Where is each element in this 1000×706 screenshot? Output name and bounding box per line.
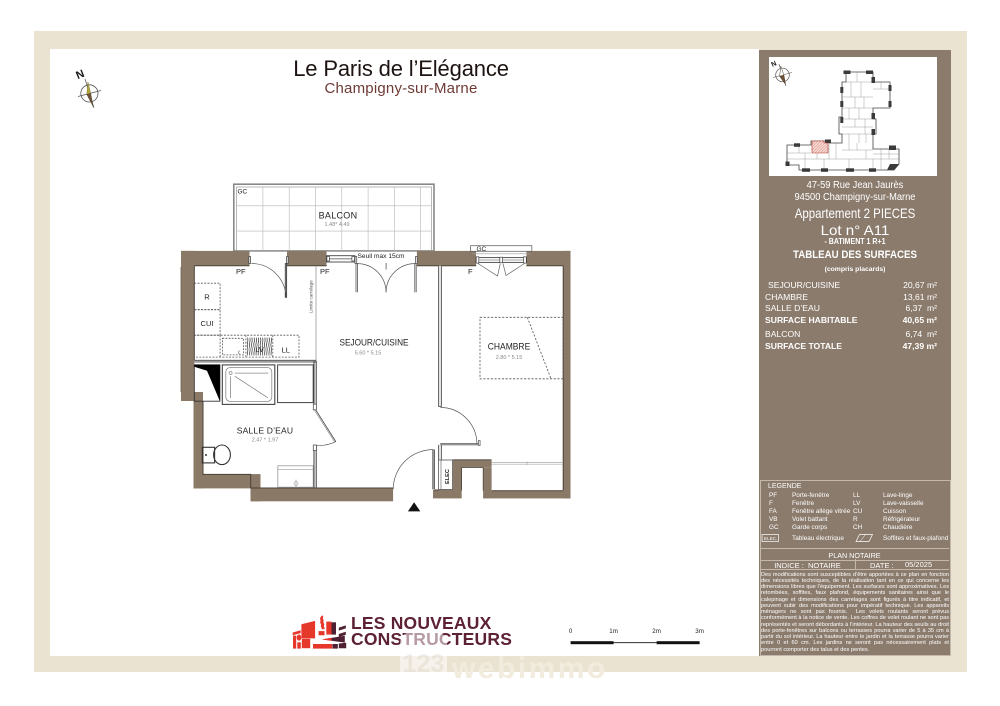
svg-text:SEJOUR/CUISINE: SEJOUR/CUISINE [340, 338, 409, 349]
svg-text:R: R [204, 293, 210, 302]
svg-text:0: 0 [569, 628, 573, 635]
svg-text:Seuil max 15cm: Seuil max 15cm [358, 253, 405, 260]
svg-text:2.80 * 5.15: 2.80 * 5.15 [496, 355, 523, 361]
svg-text:CUI: CUI [201, 319, 214, 328]
svg-text:5.60 * 5.15: 5.60 * 5.15 [355, 351, 382, 357]
svg-text:2.47 * 1.97: 2.47 * 1.97 [252, 438, 279, 444]
svg-text:ELEC: ELEC [445, 469, 451, 484]
svg-text:1.48* 4.49: 1.48* 4.49 [324, 222, 349, 228]
svg-text:LV: LV [255, 345, 264, 354]
svg-text:GC: GC [477, 246, 487, 253]
svg-text:Limite carrelage: Limite carrelage [309, 280, 314, 313]
svg-text:2m: 2m [652, 628, 661, 635]
svg-text:F: F [468, 267, 473, 276]
svg-text:3m: 3m [695, 628, 704, 635]
svg-text:CHAMBRE: CHAMBRE [488, 342, 531, 353]
svg-text:1m: 1m [609, 628, 618, 635]
svg-text:PF: PF [236, 267, 246, 276]
svg-text:BALCON: BALCON [319, 211, 358, 221]
svg-text:GC: GC [238, 189, 248, 196]
svg-text:LL: LL [282, 346, 290, 355]
svg-text:PF: PF [320, 267, 330, 276]
svg-text:SALLE D’EAU: SALLE D’EAU [237, 426, 294, 436]
